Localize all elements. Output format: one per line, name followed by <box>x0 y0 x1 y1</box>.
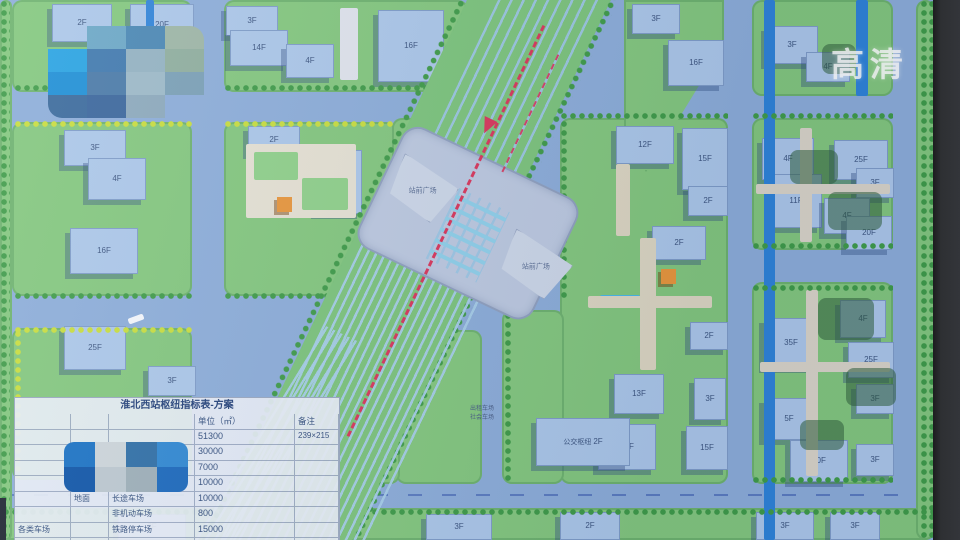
floor-label: 3F <box>705 395 714 403</box>
mosaic-cell <box>95 467 126 492</box>
mosaic-cell <box>165 72 204 95</box>
mosaic-cell <box>87 49 126 72</box>
floor-label: 20F <box>862 229 876 237</box>
mosaic-cell <box>157 467 188 492</box>
mosaic-cell <box>48 49 87 72</box>
tree-cluster <box>800 420 844 450</box>
floor-label: 2F <box>704 332 713 340</box>
building: 15F <box>686 426 728 470</box>
floor-label: 13F <box>632 390 646 398</box>
table-value-cell: 7000 <box>195 461 295 477</box>
building: 3F <box>830 512 880 540</box>
mosaic-cell <box>126 467 157 492</box>
mosaic-cell <box>126 49 165 72</box>
floor-label: 3F <box>247 17 256 25</box>
blurred-logo-table <box>64 442 188 492</box>
white-marker <box>127 313 144 324</box>
master-plan-map: 2F20F3F14F4F16F3F4F16F2F4F25F3F3F16F12F1… <box>0 0 960 540</box>
table-remark-cell: 239×215 <box>295 430 339 446</box>
table-group2-cell <box>15 430 71 446</box>
blurred-logo-topleft <box>48 26 204 118</box>
mosaic-cell <box>87 95 126 118</box>
building: 2F <box>690 322 728 350</box>
building: 4F <box>88 158 146 200</box>
hd-watermark: 高清 <box>831 38 909 86</box>
table-title: 淮北西站枢纽指标表-方案 <box>15 398 339 414</box>
station-plaza-west-label: 站前广场 <box>409 185 437 195</box>
floor-label: 15F <box>698 155 712 163</box>
floor-label: 15F <box>700 444 714 452</box>
mosaic-cell <box>126 72 165 95</box>
floor-label: 5F <box>784 415 793 423</box>
mosaic-cell <box>64 442 95 467</box>
table-remark-cell <box>295 507 339 523</box>
floor-label: 3F <box>870 456 879 464</box>
building: 3F <box>694 378 726 420</box>
tree-row <box>752 284 893 292</box>
building: 2F <box>652 226 706 260</box>
table-group2-cell <box>15 507 71 523</box>
mosaic-cell <box>48 72 87 95</box>
tree-row <box>0 0 10 540</box>
floor-label: 2F <box>585 522 594 530</box>
floor-label: 4F <box>112 175 121 183</box>
table-group-cell <box>71 507 109 523</box>
tree-row <box>752 112 893 120</box>
table-header-unit: 单位（㎡） <box>195 414 295 430</box>
mosaic-cell <box>64 467 95 492</box>
table-remark-cell <box>295 445 339 461</box>
mosaic-cell <box>95 442 126 467</box>
table-group-cell: 地面 <box>71 492 109 508</box>
station-plaza-east-label: 站前广场 <box>521 261 549 271</box>
table-group2-cell <box>15 492 71 508</box>
table-value-cell: 10000 <box>195 476 295 492</box>
mosaic-cell <box>165 26 204 49</box>
table-remark-cell <box>295 523 339 539</box>
floor-label: 25F <box>854 156 868 164</box>
floor-label: 3F <box>787 41 796 49</box>
table-value-cell: 15000 <box>195 523 295 539</box>
table-header-cell <box>109 414 195 430</box>
table-remark-cell <box>295 492 339 508</box>
table-group2-cell: 各类车场 <box>15 523 71 539</box>
table-name-cell: 长途车场 <box>109 492 195 508</box>
tree-cluster <box>790 150 838 184</box>
tree-row <box>14 120 194 128</box>
table-value-cell: 800 <box>195 507 295 523</box>
tree-row <box>752 476 893 484</box>
canal <box>764 0 775 540</box>
floor-label: 3F <box>780 522 789 530</box>
tree-cluster <box>818 298 874 340</box>
building: 2F <box>688 186 728 216</box>
mosaic-cell <box>48 26 87 49</box>
building: 14F <box>230 30 288 66</box>
floor-label: 2F <box>703 197 712 205</box>
floor-label: 2F <box>674 239 683 247</box>
mosaic-cell <box>126 26 165 49</box>
mosaic-cell <box>126 442 157 467</box>
table-group-cell <box>71 523 109 539</box>
floor-label: 3F <box>90 144 99 152</box>
building: 16F <box>70 228 138 274</box>
table-value-cell: 10000 <box>195 492 295 508</box>
table-remark-cell <box>295 461 339 477</box>
table-header-cell <box>15 414 71 430</box>
mosaic-cell <box>165 49 204 72</box>
table-name-cell: 非机动车场 <box>109 507 195 523</box>
mosaic-cell <box>157 442 188 467</box>
photo-edge-shadow <box>0 498 6 540</box>
tree-cluster <box>846 368 896 406</box>
screen-bezel <box>933 0 960 540</box>
mosaic-cell <box>87 72 126 95</box>
building: 3F <box>856 444 894 476</box>
tree-row <box>14 292 194 300</box>
mosaic-cell <box>165 95 204 118</box>
mosaic-cell <box>87 26 126 49</box>
table-remark-cell <box>295 476 339 492</box>
floor-label: 35F <box>784 339 798 347</box>
building-name-label: 公交枢纽 <box>563 439 591 446</box>
floor-label: 16F <box>97 247 111 255</box>
floor-label: 25F <box>88 344 102 352</box>
orange-landmark-building <box>661 269 676 284</box>
building: 2F <box>560 512 620 540</box>
tree-cluster <box>828 192 882 230</box>
building: 13F <box>614 374 664 414</box>
planning-map-photo: 2F20F3F14F4F16F3F4F16F2F4F25F3F3F16F12F1… <box>0 0 960 540</box>
mosaic-cell <box>126 95 165 118</box>
tree-row <box>920 0 934 540</box>
floor-label: 3F <box>850 522 859 530</box>
tree-row <box>752 242 893 250</box>
table-group2-cell <box>15 445 71 461</box>
table-value-cell: 30000 <box>195 445 295 461</box>
mosaic-cell <box>48 95 87 118</box>
floor-label: 14F <box>252 44 266 52</box>
table-header-remark: 备注 <box>295 414 339 430</box>
table-header-cell <box>71 414 109 430</box>
floor-label: 2F <box>593 438 602 446</box>
table-group2-cell <box>15 476 71 492</box>
table-name-cell: 铁路停车场 <box>109 523 195 539</box>
table-value-cell: 51300 <box>195 430 295 446</box>
table-group2-cell <box>15 461 71 477</box>
